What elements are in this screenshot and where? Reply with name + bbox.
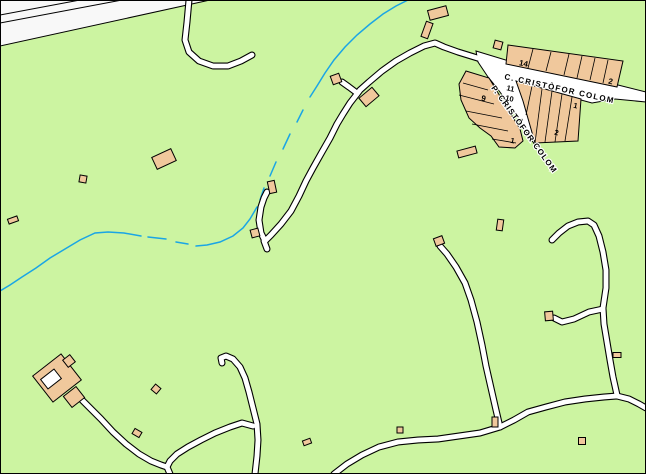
road[interactable] xyxy=(264,241,267,249)
building xyxy=(79,175,87,183)
building xyxy=(492,417,498,427)
building xyxy=(496,219,503,231)
building xyxy=(493,40,503,50)
building xyxy=(397,427,403,433)
building xyxy=(545,311,554,321)
map-canvas[interactable]: C. CRISTÒFOR COLOMP. CRISTÒFOR COLOM1421… xyxy=(0,0,646,474)
building xyxy=(250,228,260,238)
building xyxy=(579,438,586,445)
map-viewport[interactable]: C. CRISTÒFOR COLOMP. CRISTÒFOR COLOM1421… xyxy=(0,0,646,474)
building xyxy=(613,353,621,358)
